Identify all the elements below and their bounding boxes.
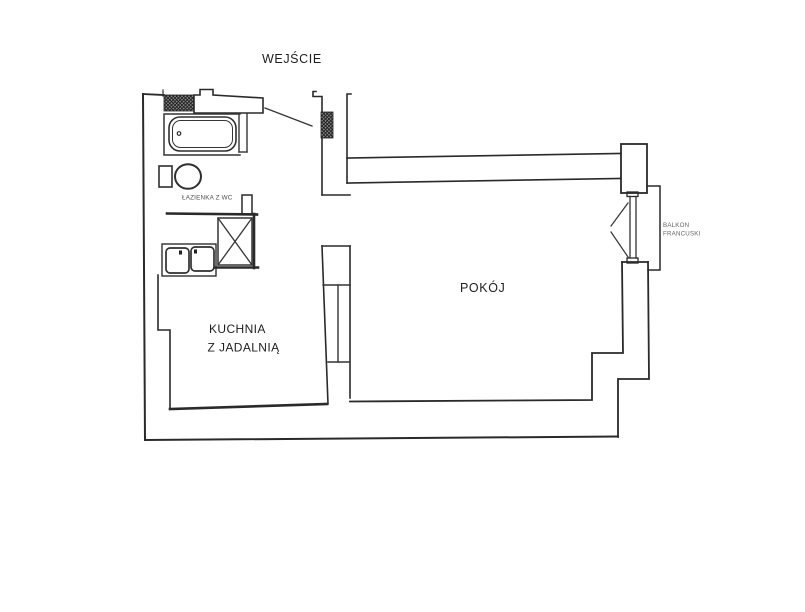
left-wall bbox=[143, 94, 145, 440]
floor-plan: WEJŚCIE ŁAZIENKA Z WC KUCHNIA Z JADALNIĄ… bbox=[0, 0, 805, 612]
masonry-hatch-block-right bbox=[321, 112, 333, 138]
room-walls bbox=[347, 144, 648, 262]
kitchen-label-line2: Z JADALNIĄ bbox=[208, 341, 281, 355]
toilet-bowl bbox=[175, 164, 201, 189]
room-top-wall-inner-line bbox=[347, 179, 621, 184]
bathroom-right-wall-lower bbox=[242, 195, 252, 214]
top-wall-left-segment bbox=[143, 94, 164, 95]
floor-plan-page: WEJŚCIE ŁAZIENKA Z WC KUCHNIA Z JADALNIĄ… bbox=[0, 0, 805, 612]
top-right-pillar bbox=[621, 144, 647, 193]
kitchen-west-wall-step bbox=[158, 275, 170, 409]
room-label: POKÓJ bbox=[460, 280, 505, 295]
bathtub bbox=[169, 117, 236, 151]
window-swing-lower bbox=[611, 232, 628, 257]
bathroom-label: ŁAZIENKA Z WC bbox=[182, 195, 233, 202]
balcony-rail bbox=[647, 186, 660, 270]
french-balcony bbox=[611, 186, 660, 270]
bottom-outer-wall bbox=[145, 437, 618, 441]
balcony-label-line2: FRANCUSKI bbox=[663, 231, 701, 238]
ventilation-shaft bbox=[215, 214, 258, 268]
entrance-right-jamb bbox=[313, 92, 322, 196]
partition-left-face bbox=[322, 246, 328, 404]
kitchen-room-partition bbox=[322, 246, 350, 404]
entry-wall-band bbox=[194, 90, 263, 114]
faucet-right bbox=[194, 250, 197, 254]
toilet-tank bbox=[159, 166, 172, 187]
hall-wall-right bbox=[347, 94, 351, 183]
balcony-label-line1: BALKON bbox=[663, 222, 689, 229]
room-top-wall-outer-line bbox=[347, 154, 621, 159]
sink-basin-left bbox=[166, 248, 189, 273]
kitchen-label-line1: KUCHNIA bbox=[209, 322, 266, 336]
window-swing-upper bbox=[611, 203, 628, 226]
masonry-hatch-block-left bbox=[164, 95, 194, 111]
kitchen-bottom-wall bbox=[170, 404, 327, 409]
entrance-label: WEJŚCIE bbox=[262, 51, 322, 66]
faucet-left bbox=[179, 251, 182, 255]
entrance-door-swing bbox=[265, 108, 312, 126]
